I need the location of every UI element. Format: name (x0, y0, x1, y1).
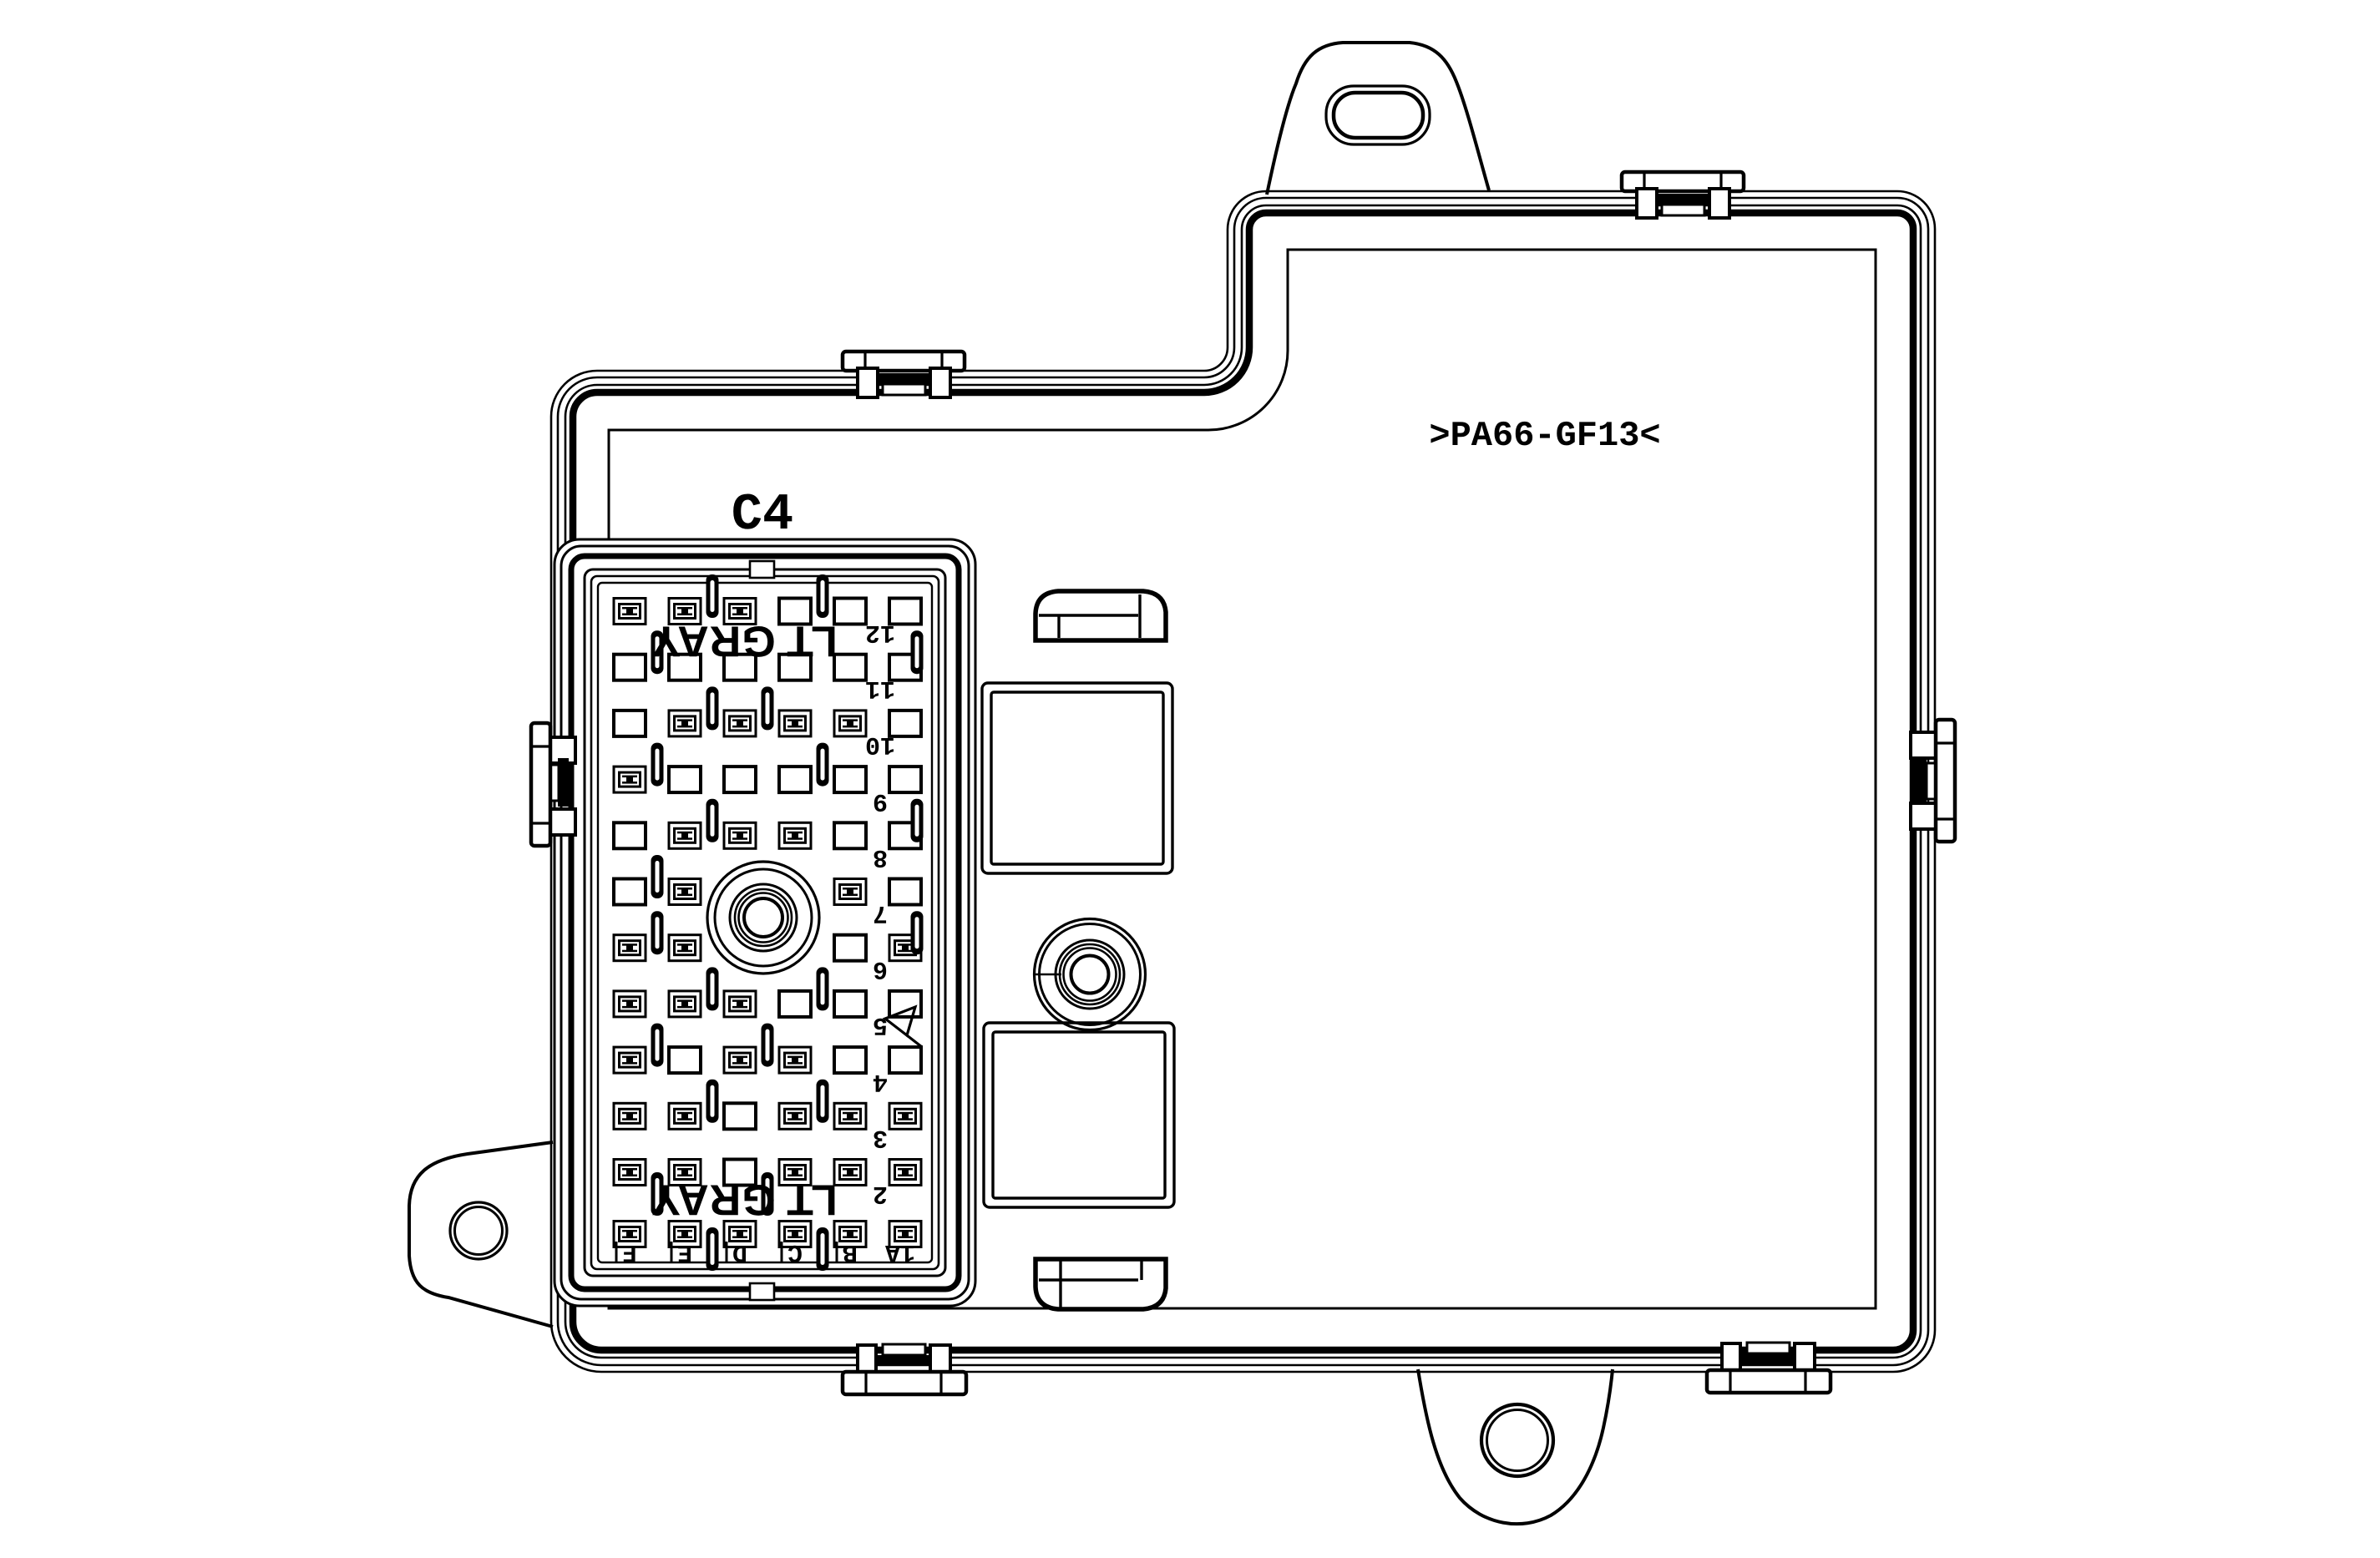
svg-text:10: 10 (865, 730, 895, 758)
svg-text:LT: LT (786, 616, 838, 665)
svg-text:B: B (843, 1237, 858, 1266)
svg-text:6: 6 (873, 954, 888, 983)
svg-text:>PA66-GF13<: >PA66-GF13< (1429, 416, 1660, 456)
svg-text:11: 11 (865, 674, 895, 702)
svg-text:5: 5 (873, 1010, 888, 1039)
svg-text:C4: C4 (732, 485, 793, 544)
svg-text:GRAY: GRAY (651, 616, 775, 665)
svg-text:D: D (732, 1237, 747, 1266)
svg-text:3: 3 (873, 1123, 888, 1151)
svg-text:F: F (622, 1237, 637, 1266)
svg-text:12: 12 (865, 618, 895, 646)
svg-text:GRAY: GRAY (651, 1175, 775, 1223)
svg-text:9: 9 (873, 787, 888, 815)
svg-text:E: E (677, 1237, 692, 1266)
svg-text:8: 8 (873, 842, 888, 871)
svg-text:4: 4 (873, 1067, 888, 1095)
svg-text:1A: 1A (885, 1237, 915, 1266)
svg-text:LT: LT (786, 1175, 838, 1223)
svg-text:7: 7 (873, 898, 888, 927)
svg-text:C: C (787, 1237, 803, 1266)
svg-text:2: 2 (873, 1179, 888, 1207)
